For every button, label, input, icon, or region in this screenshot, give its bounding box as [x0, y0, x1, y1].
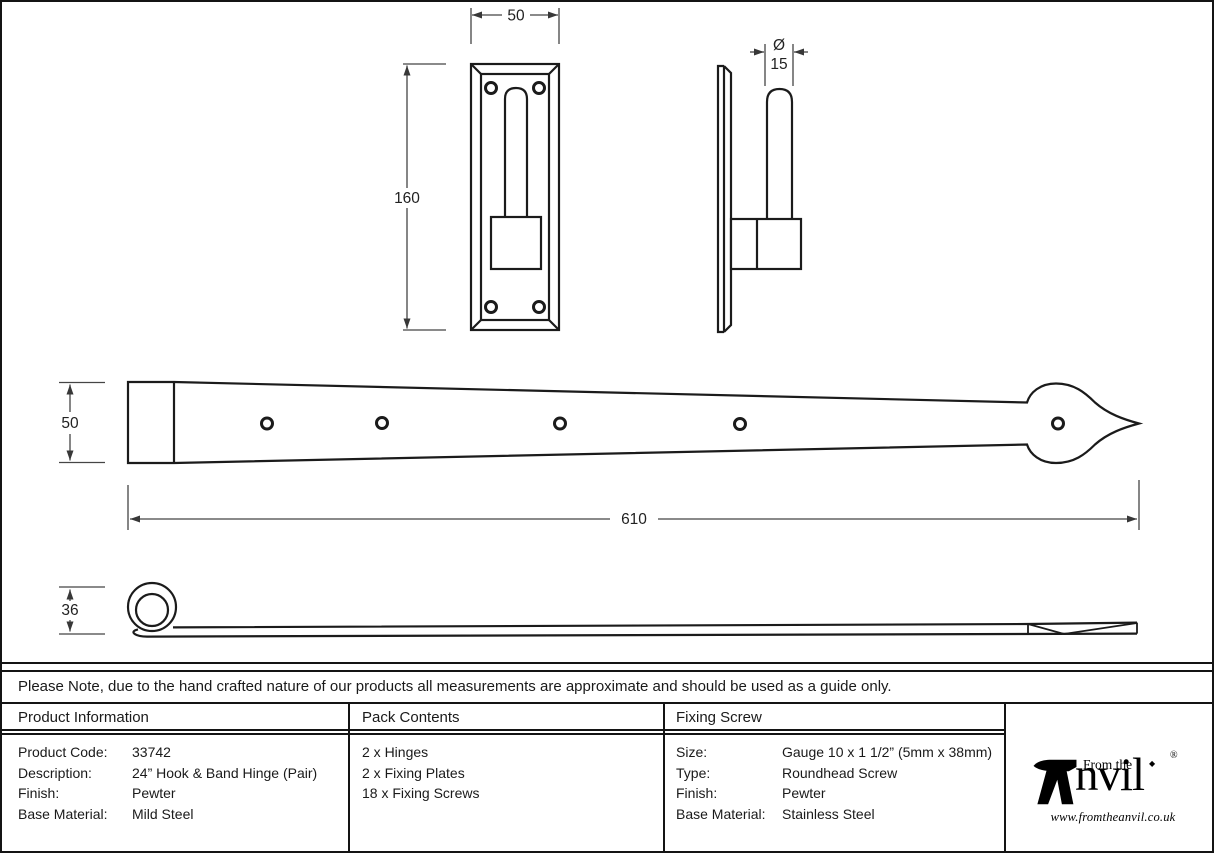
header-rule-2	[2, 733, 1004, 735]
table-row: Finish: Pewter	[676, 783, 992, 804]
screw-finish-value: Pewter	[782, 783, 826, 804]
col-divider-2	[663, 702, 665, 851]
band-outline	[128, 382, 1139, 463]
dim-label-pin-dia: 15	[770, 56, 787, 73]
dim-pin-diameter: Ø 15	[750, 37, 808, 86]
spec-sheet: 50 160 Ø 15	[0, 0, 1214, 853]
drawing-bottom-rule	[2, 662, 1212, 664]
dim-plate-height: 160	[394, 64, 446, 330]
dim-label-plate-width: 50	[507, 8, 525, 25]
description-label: Description:	[18, 763, 132, 784]
screw-hole	[486, 302, 497, 313]
screw-base-material-label: Base Material:	[676, 804, 782, 825]
plate-bevel	[481, 74, 549, 320]
base-material-value: Mild Steel	[132, 804, 193, 825]
list-item: 2 x Fixing Plates	[362, 763, 479, 784]
technical-drawing: 50 160 Ø 15	[2, 2, 1212, 661]
fixing-plate-side-view	[718, 66, 801, 332]
header-rule-1	[2, 729, 1004, 731]
table-row: Base Material: Stainless Steel	[676, 804, 992, 825]
product-code-value: 33742	[132, 742, 171, 763]
col-divider-3	[1004, 702, 1006, 851]
measurement-note: Please Note, due to the hand crafted nat…	[18, 672, 892, 702]
table-row: Finish: Pewter	[18, 783, 317, 804]
dim-label-band-width: 50	[61, 415, 79, 432]
screw-finish-label: Finish:	[676, 783, 782, 804]
dim-label-band-length: 610	[621, 511, 647, 528]
band-hole	[735, 419, 746, 430]
screw-type-value: Roundhead Screw	[782, 763, 897, 784]
plate-edge	[718, 66, 731, 332]
list-item: 2 x Hinges	[362, 742, 479, 763]
registered-mark-icon: ®	[1170, 750, 1178, 761]
finish-value: Pewter	[132, 783, 176, 804]
dim-plate-width: 50	[471, 8, 559, 45]
logo-anvil-text: nvil	[1075, 752, 1144, 799]
band-hole	[1053, 418, 1064, 429]
dim-band-length: 610	[128, 480, 1139, 530]
table-row: Base Material: Mild Steel	[18, 804, 317, 825]
list-item: 18 x Fixing Screws	[362, 783, 479, 804]
dim-side-height: 36	[59, 587, 105, 634]
screw-type-label: Type:	[676, 763, 782, 784]
mounting-block-side	[731, 219, 801, 269]
band-hinge-side-view	[128, 583, 1137, 637]
col-divider-1	[348, 702, 350, 851]
band-hole	[555, 418, 566, 429]
from-the-anvil-logo: From the ◆ nvil ® www.fromtheanvil.co.uk	[1030, 746, 1196, 832]
product-code-label: Product Code:	[18, 742, 132, 763]
screw-hole	[486, 83, 497, 94]
dim-label-side-height: 36	[61, 602, 78, 619]
screw-hole	[534, 83, 545, 94]
table-row: Description: 24” Hook & Band Hinge (Pair…	[18, 763, 317, 784]
logo-website-url: www.fromtheanvil.co.uk	[1030, 810, 1196, 825]
product-information-body: Product Code: 33742 Description: 24” Hoo…	[18, 742, 317, 824]
dim-label-plate-height: 160	[394, 190, 420, 207]
hook-pin	[505, 88, 527, 217]
table-row: Size: Gauge 10 x 1 1/2” (5mm x 38mm)	[676, 742, 992, 763]
mounting-block	[491, 217, 541, 269]
fixing-plate-front-view	[471, 64, 559, 330]
base-material-label: Base Material:	[18, 804, 132, 825]
screw-hole	[534, 302, 545, 313]
table-row: Product Code: 33742	[18, 742, 317, 763]
description-value: 24” Hook & Band Hinge (Pair)	[132, 763, 317, 784]
hinge-eye-inner	[136, 594, 168, 626]
diamond-icon: ◆	[1149, 759, 1155, 768]
fixing-screw-header: Fixing Screw	[676, 709, 762, 726]
table-top-rule	[2, 702, 1212, 704]
hook-pin-side	[767, 89, 792, 219]
screw-size-value: Gauge 10 x 1 1/2” (5mm x 38mm)	[782, 742, 992, 763]
product-information-header: Product Information	[18, 709, 149, 726]
screw-base-material-value: Stainless Steel	[782, 804, 875, 825]
anvil-icon	[1032, 756, 1078, 808]
band-hole	[262, 418, 273, 429]
band-hole	[377, 418, 388, 429]
table-row: Type: Roundhead Screw	[676, 763, 992, 784]
dim-label-pin-dia-symbol: Ø	[773, 37, 785, 54]
strap-top-edge	[173, 623, 1137, 628]
finish-label: Finish:	[18, 783, 132, 804]
strap-bottom-edge	[133, 629, 1137, 636]
pack-contents-body: 2 x Hinges 2 x Fixing Plates 18 x Fixing…	[362, 742, 479, 804]
fixing-screw-body: Size: Gauge 10 x 1 1/2” (5mm x 38mm) Typ…	[676, 742, 992, 824]
dim-band-width: 50	[59, 383, 105, 463]
band-hinge-front-view	[128, 382, 1139, 463]
plate-outline	[471, 64, 559, 330]
screw-size-label: Size:	[676, 742, 782, 763]
pack-contents-header: Pack Contents	[362, 709, 460, 726]
